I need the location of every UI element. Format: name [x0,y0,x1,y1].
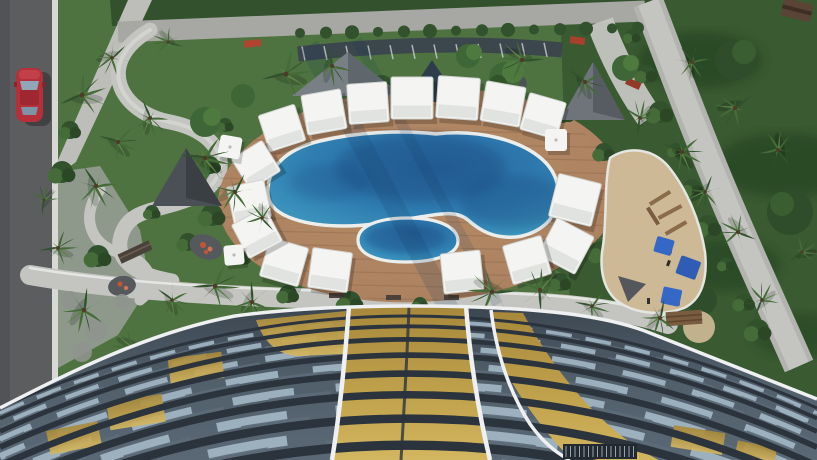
bush [744,299,755,310]
hedge-bush [295,28,305,38]
hedge-bush [476,24,488,36]
hedge-bush [345,25,359,39]
bush [143,210,153,220]
bush [732,299,745,312]
bush [198,211,213,226]
hedge-bush [320,27,332,39]
hedge-bush [554,23,566,35]
cabana-mattress [393,106,431,118]
bush [288,291,299,302]
bush [212,211,226,225]
hedge-bush [579,22,593,36]
car-rear-window [21,107,38,115]
parasol [545,129,570,155]
car-mirror [42,82,45,87]
stone [61,291,79,309]
figure [647,298,650,304]
render-svg [0,0,817,460]
hedge-bush [451,26,461,36]
cabana [347,81,394,129]
curb [52,0,58,440]
bush [152,210,161,219]
car-windshield [20,81,39,90]
red-car [14,68,51,126]
bush [632,34,641,43]
car-roof [20,90,39,105]
bush [62,168,76,182]
hedge-bush [607,23,617,33]
bush [646,71,657,82]
hedge-bush [529,24,539,34]
cabana [435,76,484,126]
bush [225,123,234,132]
cabana [307,247,357,298]
road-edge [0,0,10,440]
cabana [301,88,352,140]
bush [48,168,63,183]
walkway-bench [386,295,401,300]
hedge-bush [398,25,410,37]
bush [708,222,722,236]
hedge-bush [423,24,437,38]
rooftop-pergola-bench [666,310,703,326]
bush [726,262,735,271]
aerial-resort-render [0,0,817,460]
bush [560,279,571,290]
bush [276,291,289,304]
bush [660,108,674,122]
bush [98,252,112,266]
bush [176,239,189,252]
cabana [391,77,437,124]
stone [114,294,130,310]
bush [84,252,99,267]
bush [58,127,71,140]
car-mirror [14,82,17,87]
bush [592,149,605,162]
bush [623,34,633,44]
bush [70,127,81,138]
bush [744,326,759,341]
bush [717,262,727,272]
hedge-bush [501,23,515,37]
parasol [217,134,246,164]
car-hood [19,70,40,79]
stone [72,342,92,362]
parasol-pole [554,138,557,141]
bush [758,326,772,340]
hedge-bush [373,27,383,37]
roof-louver [563,444,637,459]
